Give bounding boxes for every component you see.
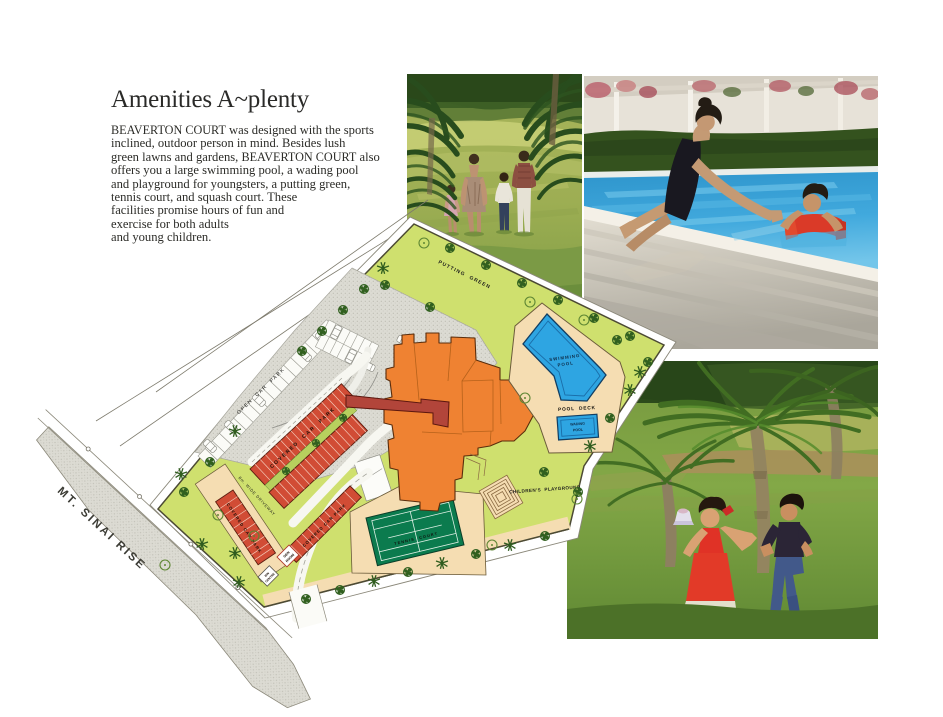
svg-text:POOL: POOL	[573, 428, 584, 433]
